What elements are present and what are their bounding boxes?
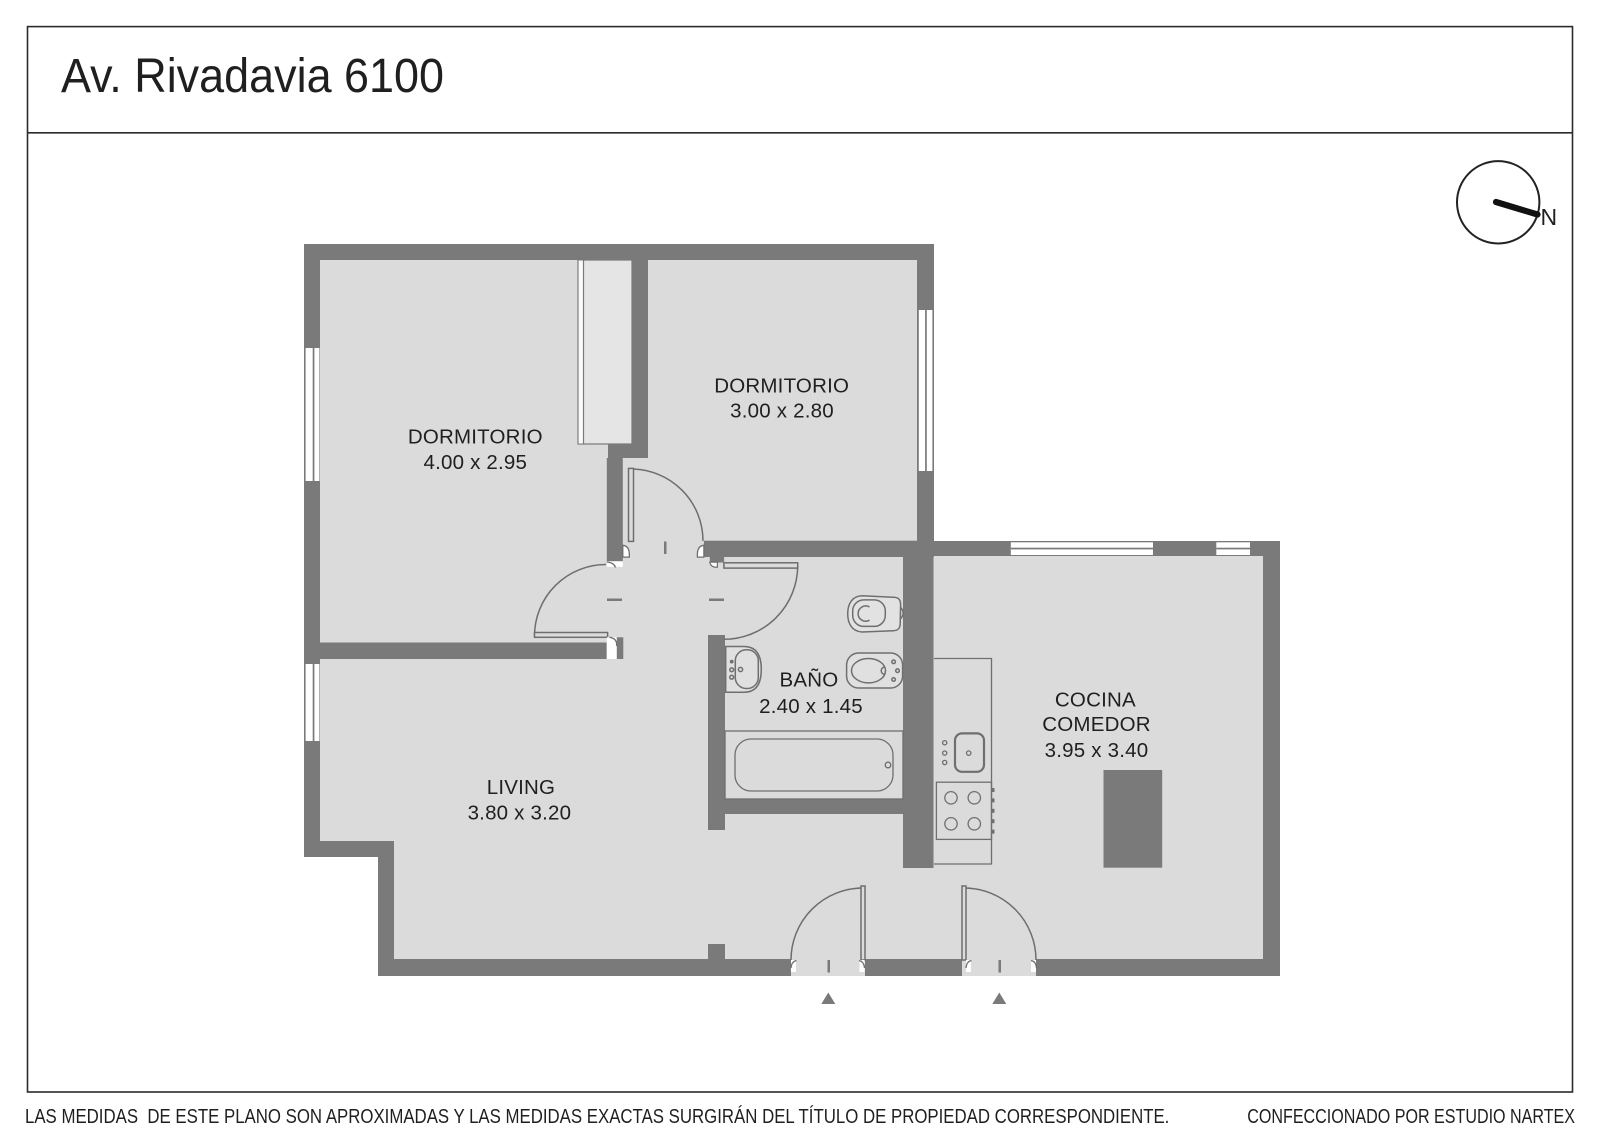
svg-text:2.40 x 1.45: 2.40 x 1.45 [759,695,863,718]
svg-text:LAS MEDIDAS DE ESTE PLANO SON: LAS MEDIDAS DE ESTE PLANO SON APROXIMADA… [25,1105,1169,1128]
svg-text:COMEDOR: COMEDOR [1042,713,1150,736]
svg-text:COCINA: COCINA [1055,689,1136,712]
svg-text:DORMITORIO: DORMITORIO [714,375,849,398]
svg-text:3.95 x 3.40: 3.95 x 3.40 [1045,739,1149,762]
svg-text:4.00 x 2.95: 4.00 x 2.95 [423,451,527,474]
svg-text:DORMITORIO: DORMITORIO [408,426,543,449]
svg-text:N: N [1541,204,1558,230]
svg-text:CONFECCIONADO POR ESTUDIO NART: CONFECCIONADO POR ESTUDIO NARTEX [1247,1105,1575,1127]
svg-text:Av. Rivadavia 6100: Av. Rivadavia 6100 [61,50,444,103]
svg-text:LIVING: LIVING [487,776,555,799]
svg-text:3.00 x 2.80: 3.00 x 2.80 [730,400,834,423]
svg-text:BAÑO: BAÑO [780,669,839,692]
svg-text:3.80 x 3.20: 3.80 x 3.20 [468,802,572,825]
